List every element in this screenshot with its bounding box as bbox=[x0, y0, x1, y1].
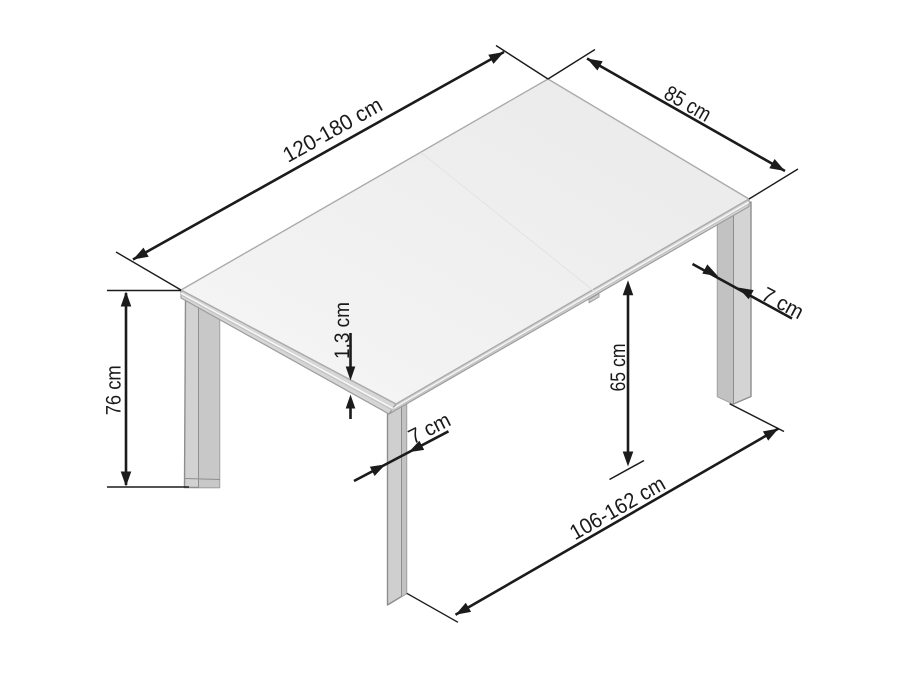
svg-text:1,3 cm: 1,3 cm bbox=[331, 302, 354, 359]
svg-text:76 cm: 76 cm bbox=[103, 365, 126, 415]
svg-text:65 cm: 65 cm bbox=[607, 344, 630, 392]
